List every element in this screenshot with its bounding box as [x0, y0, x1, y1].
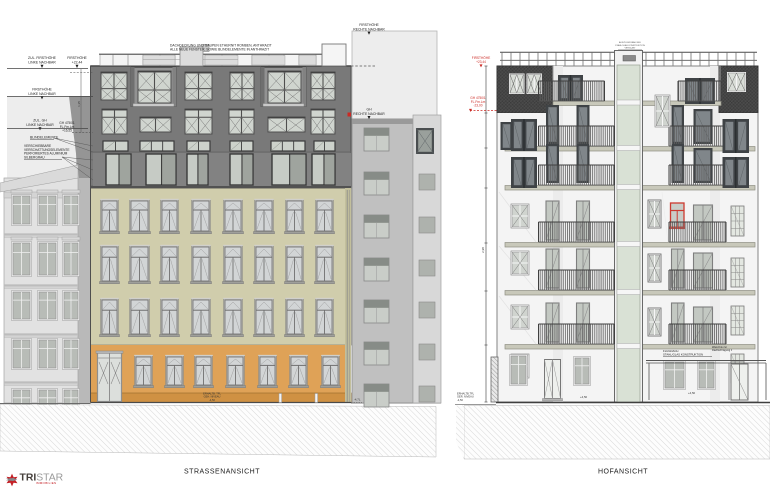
svg-text:LINKE NACHBAR: LINKE NACHBAR [26, 123, 54, 127]
svg-text:-4,7L: -4,7L [354, 398, 361, 402]
svg-text:SILBERGRAU: SILBERGRAU [24, 155, 45, 159]
svg-text:FIRSTHÖHE: FIRSTHÖHE [32, 88, 52, 92]
svg-text:Dachschrägung z: Dachschrägung z [712, 348, 733, 352]
svg-text:-23,00: -23,00 [473, 104, 482, 108]
svg-text:STRASSENANSICHT: STRASSENANSICHT [184, 469, 260, 476]
svg-text:LINKE NACHBAR: LINKE NACHBAR [28, 92, 56, 96]
svg-text:GH: GH [366, 108, 372, 112]
svg-text:FIRSTHÖHE: FIRSTHÖHE [67, 56, 87, 60]
svg-text:+22,44: +22,44 [72, 60, 83, 64]
svg-text:LINKE NACHBAR: LINKE NACHBAR [28, 60, 56, 64]
svg-text:STAHL/GLAS KONSTRUKTION: STAHL/GLAS KONSTRUKTION [663, 353, 703, 357]
svg-text:BLINDELEMENTE: BLINDELEMENTE [30, 136, 59, 140]
svg-text:STAHL/GLAS KONSTRUKTION: STAHL/GLAS KONSTRUKTION [615, 44, 645, 47]
svg-text:ALLE NEUE FENSTER, SOWIE BLIND: ALLE NEUE FENSTER, SOWIE BLINDELEMENTE I… [170, 48, 269, 52]
svg-text:ZUL. FIRSTHÖHE: ZUL. FIRSTHÖHE [28, 56, 57, 60]
svg-text:+23,44: +23,44 [476, 60, 486, 64]
svg-text:2,98: 2,98 [481, 247, 485, 253]
svg-text:FIRSTHÖHE: FIRSTHÖHE [359, 23, 379, 27]
svg-text:-4,50: -4,50 [209, 398, 215, 402]
svg-text:VERGLAST: VERGLAST [624, 47, 636, 50]
svg-text:AUFZUGSZUBAU NEU: AUFZUGSZUBAU NEU [619, 41, 641, 44]
svg-text:HOFANSICHT: HOFANSICHT [598, 469, 648, 476]
svg-text:RECHTE NACHBAR: RECHTE NACHBAR [353, 27, 385, 31]
svg-text:RECHTE NACHBAR: RECHTE NACHBAR [353, 112, 385, 116]
svg-text:1,35: 1,35 [77, 101, 81, 107]
svg-text:+4,50: +4,50 [688, 391, 696, 395]
svg-text:ZUL. GH: ZUL. GH [33, 119, 47, 123]
svg-text:IMMOBILIEN: IMMOBILIEN [36, 481, 57, 485]
svg-text:+16,55: +16,55 [62, 129, 72, 133]
svg-text:-4,50: -4,50 [457, 398, 463, 402]
svg-text:+4,50: +4,50 [580, 395, 588, 399]
